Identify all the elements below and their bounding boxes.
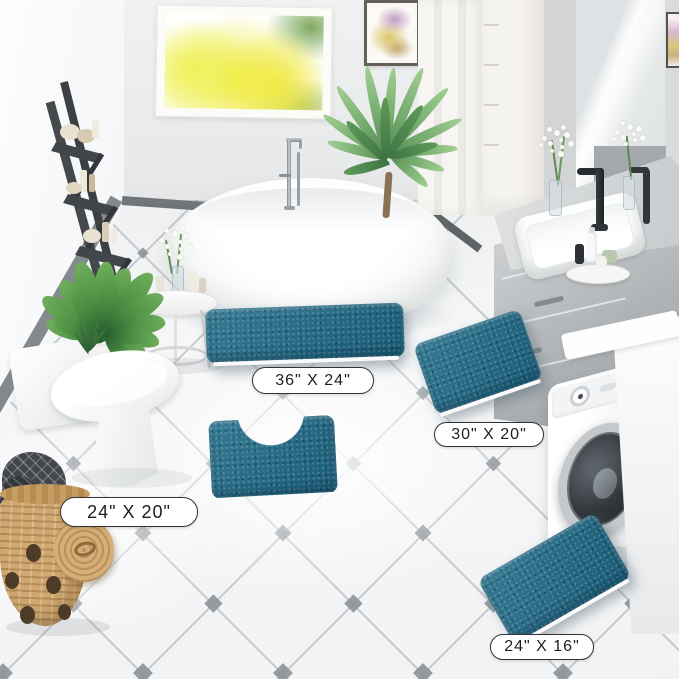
tub-faucet [276, 132, 310, 212]
cabinet-shelf-line [484, 24, 499, 26]
cabinet-shelf-line [484, 64, 499, 66]
washer-drum-cap [593, 465, 617, 501]
vase-glass [623, 176, 635, 210]
palm-trunk [382, 172, 392, 218]
faucet-spout-tip [299, 140, 302, 149]
size-label-24x20: 24" X 20" [60, 497, 198, 527]
rug-contour-24x20 [208, 415, 338, 499]
vanity-faucet [596, 168, 604, 228]
bathroom-scene: 36" X 24" 30" X 20" 24" X 20" 24" X 16" [0, 0, 679, 679]
wall-art-frame [364, 0, 420, 66]
vase-glass [549, 180, 562, 216]
flower-floret [542, 136, 547, 141]
window-view [164, 14, 324, 111]
flower-floret [561, 125, 566, 130]
vase-stem [557, 136, 565, 186]
mirror-art-reflection [666, 12, 679, 68]
flower-floret [568, 141, 574, 147]
basket-dot [46, 576, 61, 594]
flower-floret [560, 145, 564, 149]
flower-floret [633, 138, 637, 142]
dark-bottle [575, 244, 584, 264]
flower-floret [636, 126, 642, 132]
pump-top [589, 227, 595, 233]
flower-floret [620, 121, 625, 126]
flower-floret [564, 132, 570, 138]
basket-dot [26, 544, 41, 562]
handshower-pole [297, 152, 300, 206]
faucet-handle [279, 174, 291, 177]
palm-plant [326, 78, 466, 228]
flower-floret [640, 135, 646, 141]
size-label-24x16: 24" X 16" [490, 634, 594, 660]
rug-36x24 [205, 303, 405, 364]
flower-floret [547, 127, 552, 132]
flower-floret [558, 151, 564, 157]
table-bottle [199, 278, 206, 293]
cabinet-shelf-line [484, 144, 499, 146]
tray [566, 264, 630, 284]
flower-floret [627, 124, 633, 130]
flower-floret [554, 130, 560, 136]
size-label-36x24: 36" X 24" [252, 367, 374, 394]
basket-dot [5, 572, 19, 589]
counter-vase [534, 118, 578, 218]
window [155, 4, 333, 119]
flower-floret [632, 132, 636, 136]
size-label-30x20: 30" X 20" [434, 422, 544, 447]
flower-floret [539, 143, 543, 147]
flower-floret [624, 142, 628, 146]
faucet-base [284, 206, 295, 210]
laundry-basket [0, 446, 120, 638]
toiletry-tray [566, 230, 638, 288]
flower-floret [187, 244, 193, 250]
flower-floret [615, 130, 620, 135]
white-jar [596, 256, 607, 267]
basket-shadow [6, 618, 110, 636]
wall-art-print [371, 6, 413, 60]
mirror-vase-reflection [610, 112, 650, 212]
cabinet-shelf-line [484, 104, 499, 106]
flower-floret [612, 137, 616, 141]
